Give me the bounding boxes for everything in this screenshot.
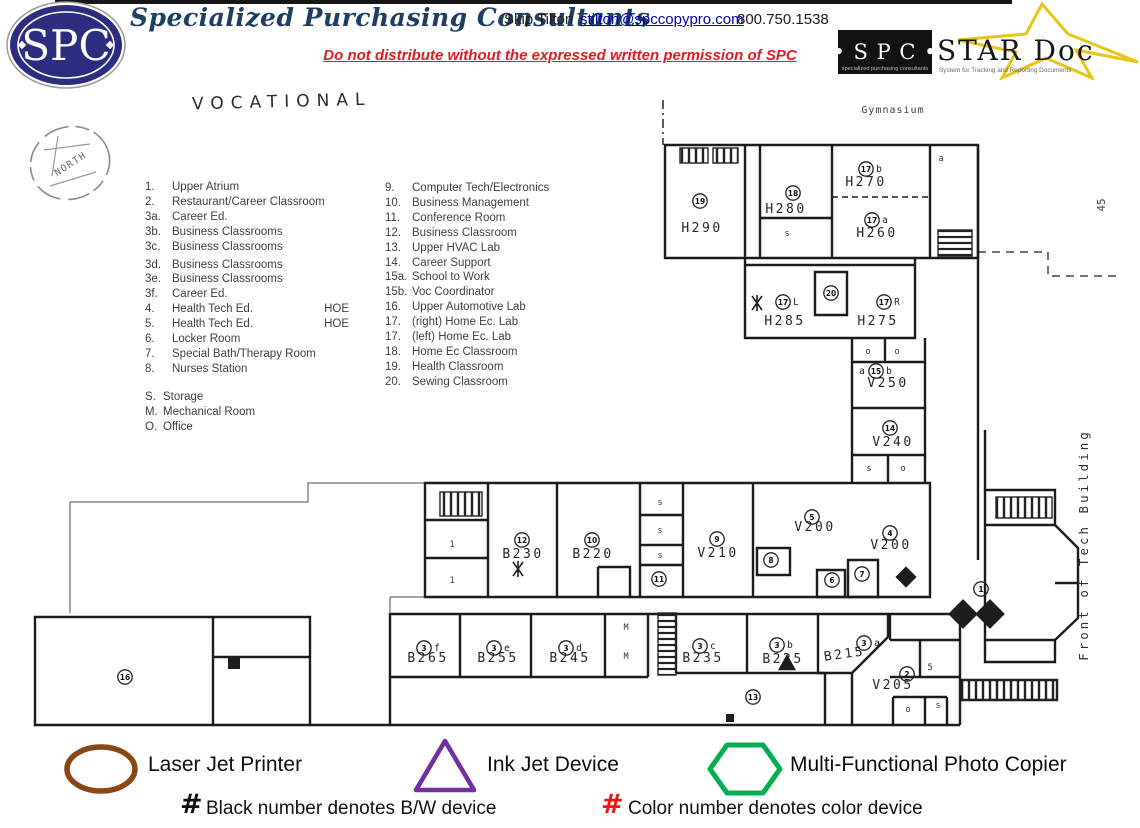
svg-text:L: L bbox=[793, 297, 799, 308]
svg-text:9: 9 bbox=[714, 535, 719, 544]
svg-text:3: 3 bbox=[421, 644, 426, 653]
small-room-label: M bbox=[623, 652, 628, 662]
numbered-device-marker: 17L bbox=[776, 295, 799, 309]
svg-text:11: 11 bbox=[654, 575, 664, 584]
device-number-markers: 191817b17a17L17R2015ba1412101195867413f3… bbox=[118, 162, 988, 704]
small-room-label: a bbox=[938, 154, 943, 164]
scanned-floorplan-page: SPC Specialized Purchasing Consultants S… bbox=[0, 0, 1140, 828]
svg-text:f: f bbox=[434, 643, 440, 654]
svg-text:3: 3 bbox=[491, 644, 496, 653]
small-room-label: s bbox=[935, 701, 940, 711]
small-room-label: o bbox=[905, 705, 910, 715]
svg-text:e: e bbox=[504, 643, 510, 654]
small-room-label: o bbox=[894, 347, 899, 357]
svg-text:b: b bbox=[876, 164, 882, 175]
bw-note: Black number denotes B/W device bbox=[206, 798, 496, 820]
laserjet-label: Laser Jet Printer bbox=[148, 753, 302, 777]
numbered-device-marker: 10 bbox=[585, 533, 599, 547]
numbered-device-marker: 8 bbox=[764, 553, 778, 567]
inkjet-triangle-icon bbox=[410, 736, 480, 796]
svg-text:c: c bbox=[710, 641, 716, 652]
copier-label: Multi-Functional Photo Copier bbox=[790, 753, 1067, 777]
svg-text:17: 17 bbox=[778, 298, 788, 307]
small-room-label: s bbox=[657, 551, 662, 561]
svg-text:1: 1 bbox=[978, 585, 983, 594]
svg-text:R: R bbox=[894, 297, 900, 308]
room-label: H275 bbox=[857, 314, 898, 329]
front-of-tech-building-label: Front of Tech Building bbox=[1076, 429, 1091, 661]
room-label: H290 bbox=[681, 221, 722, 236]
svg-text:17: 17 bbox=[879, 298, 889, 307]
room-label: V210 bbox=[697, 546, 738, 561]
room-label: B215 bbox=[823, 644, 866, 665]
numbered-device-marker: 18 bbox=[786, 186, 800, 200]
inkjet-label: Ink Jet Device bbox=[487, 753, 619, 777]
room-label: V240 bbox=[872, 435, 913, 450]
svg-text:3: 3 bbox=[861, 639, 866, 648]
north-compass: NORTH bbox=[20, 115, 120, 210]
numbered-device-marker: 19 bbox=[693, 194, 707, 208]
diamond-device-mark bbox=[948, 599, 978, 629]
svg-text:7: 7 bbox=[859, 570, 864, 579]
svg-text:18: 18 bbox=[788, 189, 798, 198]
svg-text:10: 10 bbox=[587, 536, 597, 545]
svg-text:6: 6 bbox=[829, 576, 834, 585]
small-room-label: s bbox=[657, 526, 662, 536]
small-room-label: o bbox=[900, 464, 905, 474]
svg-text:b: b bbox=[787, 640, 793, 651]
room-label: V200 bbox=[794, 520, 835, 535]
numbered-device-marker: 20 bbox=[824, 286, 838, 300]
svg-text:17: 17 bbox=[861, 165, 871, 174]
svg-text:15: 15 bbox=[871, 367, 881, 376]
room-label: B230 bbox=[502, 547, 543, 562]
svg-text:17: 17 bbox=[867, 216, 877, 225]
small-room-label: 1 bbox=[449, 576, 454, 586]
small-room-label: s bbox=[657, 498, 662, 508]
svg-text:13: 13 bbox=[748, 693, 758, 702]
floor-plan: NORTH bbox=[0, 0, 1140, 828]
svg-text:12: 12 bbox=[517, 536, 527, 545]
diamond-device-mark bbox=[895, 566, 916, 587]
square-device-mark bbox=[228, 657, 240, 669]
numbered-device-marker: 14 bbox=[883, 421, 897, 435]
svg-text:b: b bbox=[886, 366, 892, 377]
diamond-device-mark bbox=[975, 599, 1005, 629]
copier-hexagon-icon bbox=[705, 740, 785, 798]
bw-hash-icon: # bbox=[180, 789, 203, 820]
svg-text:d: d bbox=[576, 643, 582, 654]
floorplan-walls bbox=[35, 145, 1078, 725]
svg-text:14: 14 bbox=[885, 424, 895, 433]
svg-text:3: 3 bbox=[697, 642, 702, 651]
small-room-label: 5 bbox=[927, 663, 932, 673]
small-room-label: 1 bbox=[449, 540, 454, 550]
svg-text:a: a bbox=[882, 215, 888, 226]
room-label: H260 bbox=[856, 226, 897, 241]
laserjet-ellipse-icon bbox=[60, 742, 142, 796]
square-device-mark bbox=[726, 714, 734, 722]
color-hash-icon: # bbox=[601, 789, 624, 820]
room-label: H285 bbox=[764, 314, 805, 329]
svg-text:4: 4 bbox=[887, 529, 892, 538]
numbered-device-marker: 11 bbox=[652, 572, 666, 586]
svg-text:16: 16 bbox=[120, 673, 130, 682]
small-room-label: s bbox=[866, 464, 871, 474]
numbered-device-marker: 16 bbox=[118, 670, 132, 684]
numbered-device-marker: 17R bbox=[877, 295, 900, 309]
svg-text:19: 19 bbox=[695, 197, 705, 206]
svg-text:5: 5 bbox=[809, 513, 814, 522]
room-label: H280 bbox=[765, 202, 806, 217]
svg-text:3: 3 bbox=[563, 644, 568, 653]
x-device-mark bbox=[752, 295, 762, 311]
side-note: 45 bbox=[1095, 198, 1108, 211]
room-label: B220 bbox=[572, 547, 613, 562]
numbered-device-marker: 13 bbox=[746, 690, 760, 704]
svg-text:20: 20 bbox=[826, 289, 836, 298]
x-device-mark bbox=[513, 561, 523, 577]
compass-label: NORTH bbox=[53, 150, 89, 179]
numbered-device-marker: 7 bbox=[855, 567, 869, 581]
svg-text:3: 3 bbox=[774, 641, 779, 650]
device-symbols bbox=[228, 295, 1005, 722]
svg-text:8: 8 bbox=[768, 556, 773, 565]
numbered-device-marker: 12 bbox=[515, 533, 529, 547]
gymnasium-label: Gymnasium bbox=[861, 105, 924, 116]
svg-text:a: a bbox=[874, 638, 880, 649]
svg-text:2: 2 bbox=[904, 670, 909, 679]
svg-text:a: a bbox=[859, 366, 865, 377]
small-room-label: s bbox=[784, 229, 789, 239]
small-room-label: o bbox=[865, 347, 870, 357]
numbered-device-marker: 3b bbox=[770, 638, 793, 652]
numbered-device-marker: 9 bbox=[710, 532, 724, 546]
color-note: Color number denotes color device bbox=[628, 798, 923, 820]
room-label: H270 bbox=[845, 175, 886, 190]
room-label: V205 bbox=[872, 678, 913, 693]
small-room-label: M bbox=[623, 623, 628, 633]
numbered-device-marker: 6 bbox=[825, 573, 839, 587]
dashed-property-line bbox=[978, 252, 1118, 276]
open-area-outline bbox=[70, 483, 425, 614]
